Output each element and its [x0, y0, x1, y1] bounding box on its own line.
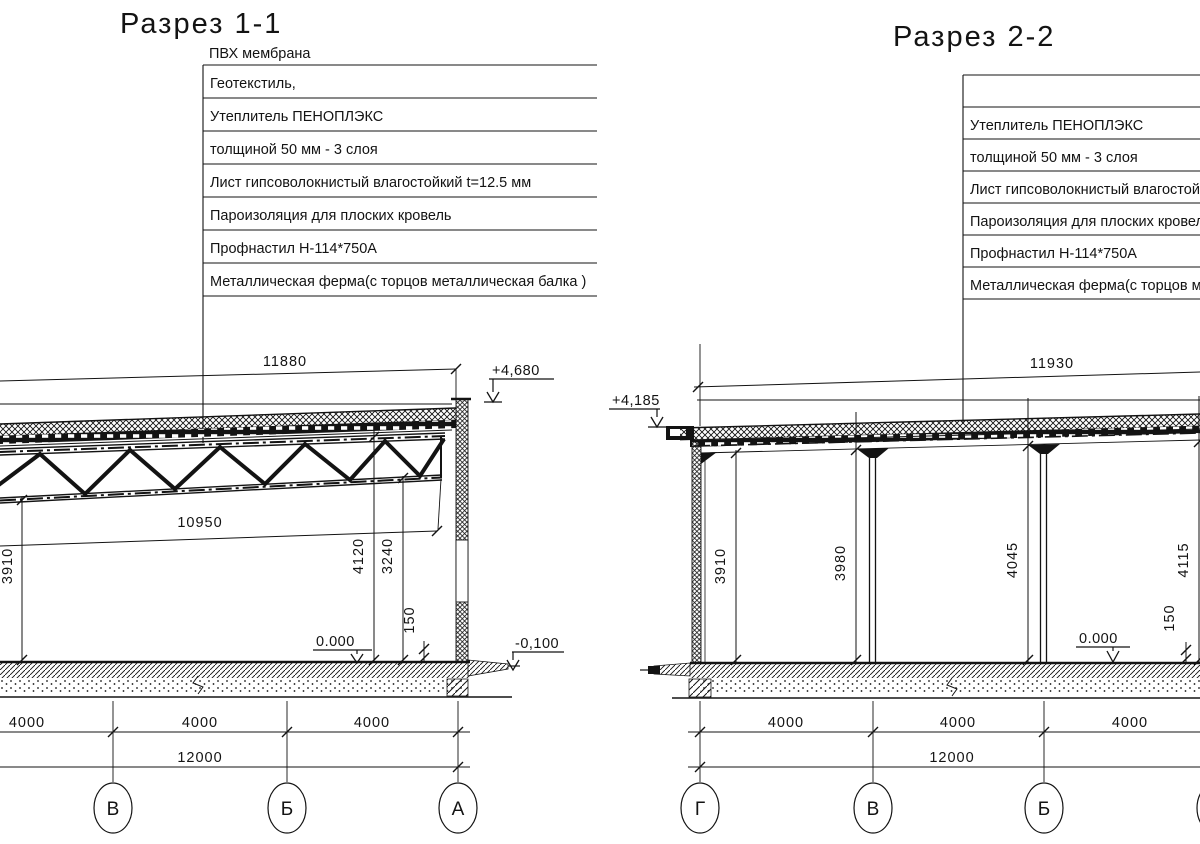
callout-row: Металлическая ферма(с торцов металлическ…	[210, 274, 586, 290]
drawing-canvas: Разрез 1-1 ПВХ мембрана Геотекстиль, Уте…	[0, 0, 1200, 844]
grid-label: А	[452, 799, 465, 820]
bay-dim: 4000	[354, 715, 390, 731]
callout-row: Утеплитель ПЕНОПЛЭКС	[210, 109, 383, 125]
callout-row: Профнастил Н-114*750А	[970, 246, 1137, 262]
callout-row: Профнастил Н-114*750А	[210, 241, 377, 257]
technical-drawing-sheet: Разрез 1-1 ПВХ мембрана Геотекстиль, Уте…	[0, 0, 1200, 844]
total-dim: 12000	[929, 750, 974, 766]
dim-label: 4120	[351, 538, 367, 574]
dim-label: 11930	[1030, 356, 1074, 372]
section-title: Разрез 1-1	[120, 8, 282, 40]
dim-label: 4115	[1176, 542, 1192, 577]
grid-label: Б	[281, 799, 293, 820]
level-label: -0,100	[515, 636, 559, 652]
callout-row: Утеплитель ПЕНОПЛЭКС	[970, 118, 1143, 134]
floor-slab	[640, 663, 1200, 698]
dim-label: 11880	[263, 354, 307, 370]
callout-row: Геотекстиль,	[210, 76, 296, 92]
callout-row: Лист гипсоволокнистый влагостойкий t=12.…	[210, 175, 531, 191]
bay-dim: 4000	[1112, 715, 1148, 731]
bay-dim: 4000	[9, 715, 45, 731]
foundation	[447, 679, 468, 696]
level-label: +4,680	[492, 363, 540, 379]
section-title: Разрез 2-2	[893, 21, 1055, 53]
grid-label: Г	[695, 799, 705, 820]
bay-dim: 4000	[768, 715, 804, 731]
floor-slab	[0, 660, 520, 697]
wall-opening	[456, 540, 468, 602]
level-label: +4,185	[612, 393, 660, 409]
level-label: 0.000	[1079, 631, 1118, 647]
dim-label: 3980	[833, 545, 849, 581]
dim-label: 3240	[380, 538, 396, 574]
dim-label: 4045	[1005, 542, 1021, 578]
dim-label: 10950	[177, 515, 222, 531]
callout-row: толщиной 50 мм - 3 слоя	[210, 142, 378, 158]
dim-label: 150	[1162, 604, 1178, 631]
dim-label: 150	[402, 606, 418, 633]
grid-label: В	[867, 799, 880, 820]
grid-label: Б	[1038, 799, 1050, 820]
foundation	[689, 679, 711, 697]
callout-row: Пароизоляция для плоских кровель	[210, 208, 451, 224]
bay-dim: 4000	[182, 715, 218, 731]
callout-row: толщиной 50 мм - 3 слоя	[970, 150, 1138, 166]
dim-label: 3910	[0, 548, 16, 584]
callout-row: Металлическая ферма(с торцов металлическ…	[970, 278, 1200, 294]
callout-row: ПВХ мембрана	[209, 46, 311, 62]
total-dim: 12000	[177, 750, 222, 766]
bay-dim: 4000	[940, 715, 976, 731]
callout-row: Лист гипсоволокнистый влагостойкий t=12.…	[970, 182, 1200, 198]
callout-row: Пароизоляция для плоских кровель	[970, 214, 1200, 230]
dim-label: 3910	[713, 548, 729, 584]
level-label: 0.000	[316, 634, 355, 650]
grid-label: В	[107, 799, 120, 820]
